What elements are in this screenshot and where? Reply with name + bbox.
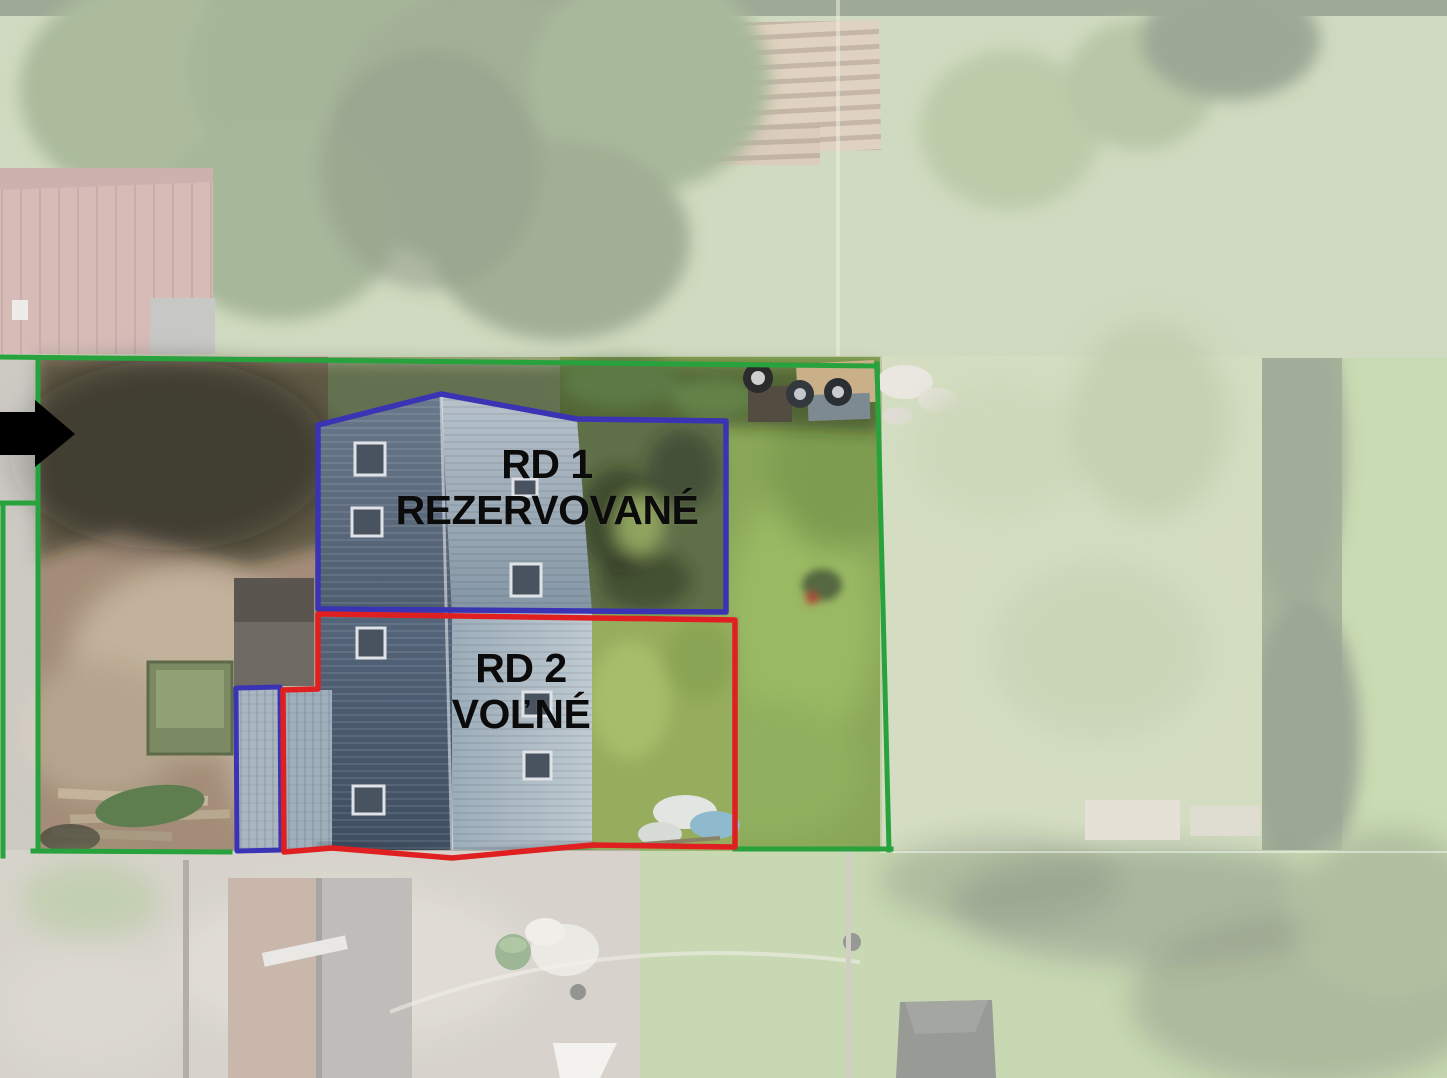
rd1-label-line2: REZERVOVANÉ xyxy=(387,487,707,533)
aerial-photo-canvas xyxy=(0,0,1447,1078)
rd1-label-line1: RD 1 xyxy=(387,441,707,487)
rd2-label: RD 2 VOĽNÉ xyxy=(361,645,681,737)
rd2-label-line2: VOĽNÉ xyxy=(361,691,681,737)
aerial-photo-annotated: RD 1 REZERVOVANÉ RD 2 VOĽNÉ xyxy=(0,0,1447,1078)
rd2-label-line1: RD 2 xyxy=(361,645,681,691)
yard-equipment xyxy=(743,360,876,422)
garden-cart xyxy=(148,662,232,754)
rd1-label: RD 1 REZERVOVANÉ xyxy=(387,441,707,533)
